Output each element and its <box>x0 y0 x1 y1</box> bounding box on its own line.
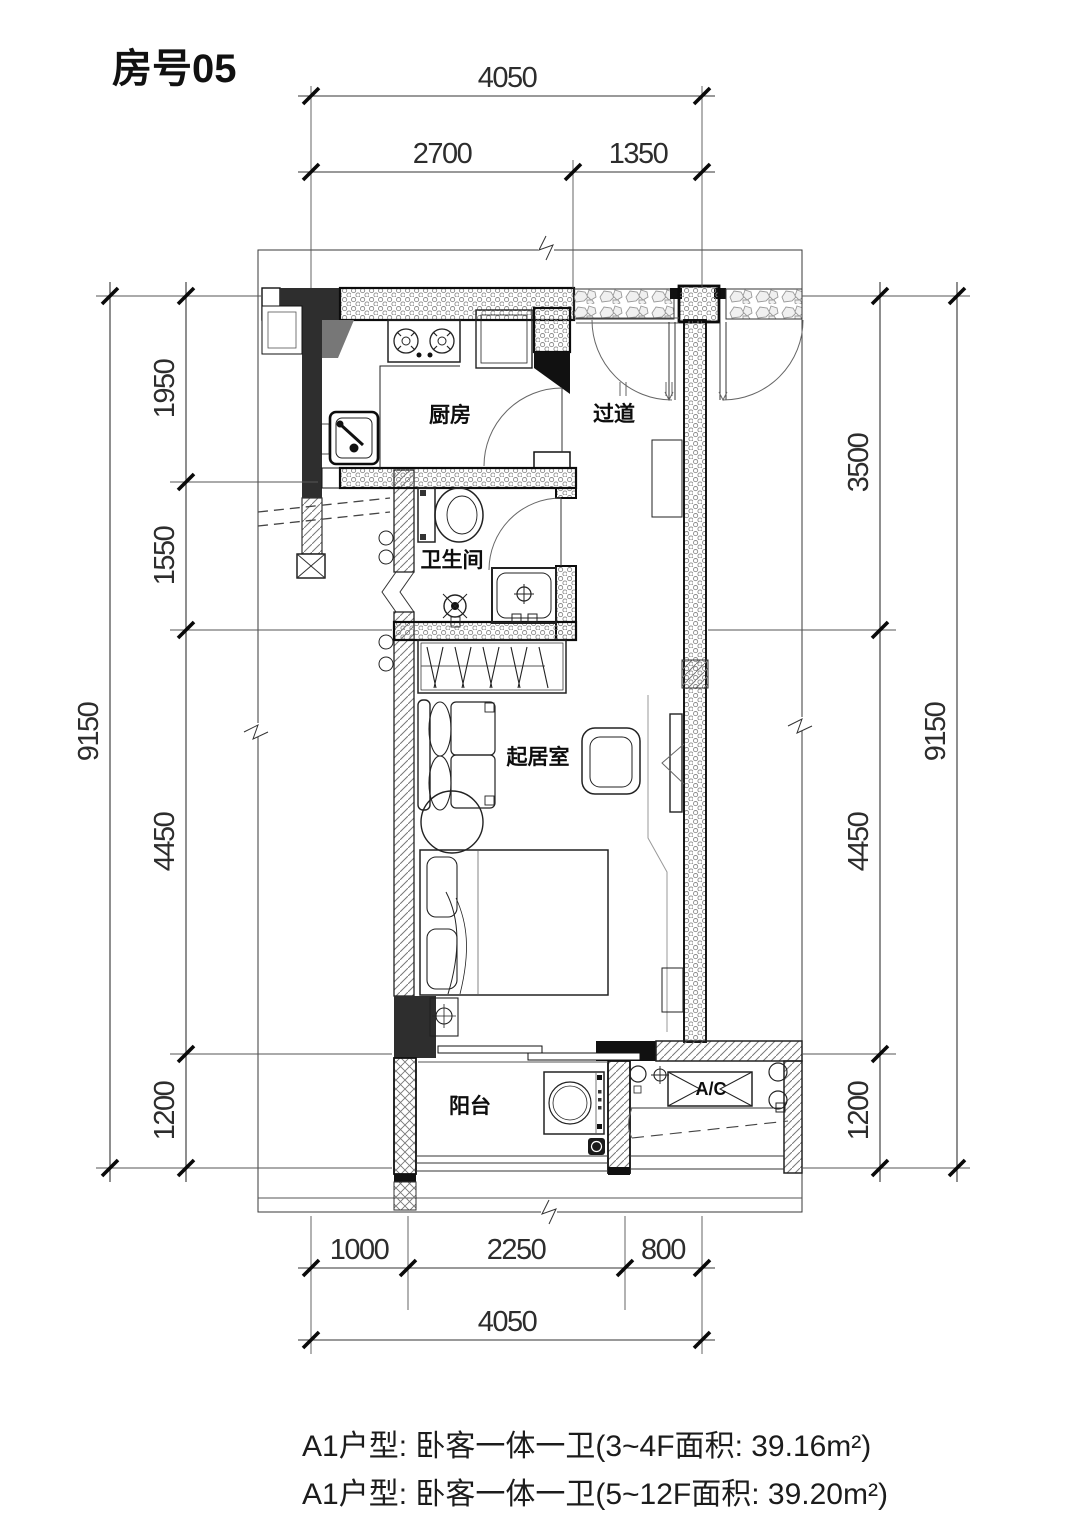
floor-edge-line <box>648 695 667 1032</box>
dim-left-seg1: 1950 <box>149 359 181 418</box>
washing-machine <box>544 1072 604 1134</box>
page-title: 房号05 <box>112 47 237 91</box>
caption-line-1: A1户型: 卧客一体一卫(3~4F面积: 39.16m²) <box>302 1430 871 1463</box>
floor-plan-canvas: 厨房 过道 卫生间 起居室 阳台 A/C 4050 2700 1350 1000… <box>0 0 1080 1528</box>
neighbor-entry-door <box>719 320 803 400</box>
wall-break-symbol <box>382 572 396 612</box>
balcony-label: 阳台 <box>449 1094 491 1118</box>
kitchen-label: 厨房 <box>429 403 471 427</box>
dim-left-seg3: 4450 <box>149 812 181 871</box>
dim-right-seg2: 4450 <box>843 812 875 871</box>
balcony-west-wall <box>394 1058 416 1174</box>
dim-top-overall: 4050 <box>478 62 537 94</box>
balcony-ac-divider-wall <box>608 1061 630 1173</box>
louver-swing <box>632 1121 788 1138</box>
pipe <box>379 657 393 671</box>
duct-shaft <box>302 288 322 498</box>
west-wall-lower <box>394 612 414 996</box>
pipe <box>379 635 393 649</box>
dim-top-seg1: 2700 <box>413 138 472 170</box>
ac-east-wall <box>784 1061 802 1173</box>
door-track-marks <box>620 382 672 396</box>
dim-top-seg2: 1350 <box>609 138 668 170</box>
coffee-table <box>421 791 483 853</box>
bathroom-label: 卫生间 <box>421 548 484 572</box>
ac-north-wall <box>656 1041 802 1061</box>
kitchen-door-jamb-box <box>534 452 570 468</box>
bathroom-south-wall <box>394 622 576 640</box>
sofa <box>418 700 495 810</box>
pipe-hole <box>630 1066 646 1082</box>
cabinet-panel <box>652 440 682 517</box>
tv <box>662 714 684 812</box>
bed <box>420 850 608 995</box>
floor-drain <box>588 1138 605 1155</box>
living-room-label: 起居室 <box>506 745 570 769</box>
caption-line-2: A1户型: 卧客一体一卫(5~12F面积: 39.20m²) <box>302 1478 888 1511</box>
dimensions-top: 4050 2700 1350 <box>298 62 715 288</box>
bathroom-door <box>489 498 561 570</box>
kitchen-fixtures <box>321 310 532 470</box>
entry-north-wall <box>574 289 674 319</box>
drain-box <box>634 1086 641 1093</box>
pipe <box>379 550 393 564</box>
balcony-window <box>416 1156 608 1171</box>
east-wall-pier <box>682 660 708 688</box>
washbasin <box>492 568 556 623</box>
flue-funnel-right <box>322 320 354 358</box>
floor-plan-page: 厨房 过道 卫生间 起居室 阳台 A/C 4050 2700 1350 1000… <box>0 0 1080 1528</box>
balcony-wall-stub <box>394 1182 416 1210</box>
wardrobe <box>418 640 566 693</box>
neighbor-north-wall <box>726 289 802 319</box>
bathroom-north-wall <box>340 468 576 488</box>
hallway-label: 过道 <box>593 402 635 426</box>
dim-right-overall: 9150 <box>920 702 952 761</box>
balcony-fixtures <box>416 1072 608 1171</box>
dim-bottom-seg2: 2250 <box>487 1234 546 1266</box>
armchair <box>582 728 640 794</box>
kitchen-sink <box>321 412 378 464</box>
dim-right-seg3: 1200 <box>843 1081 875 1140</box>
dim-bottom-seg3: 800 <box>641 1234 685 1266</box>
dim-left-overall: 9150 <box>73 702 105 761</box>
kitchen-east-wall <box>534 308 570 352</box>
dim-right-seg1: 3500 <box>843 433 875 492</box>
dim-left-seg2: 1550 <box>149 526 181 585</box>
toilet <box>418 488 483 542</box>
side-table <box>662 968 683 1012</box>
entry-pier <box>679 286 719 322</box>
drain-crosshair <box>651 1066 669 1084</box>
dimensions-bottom: 1000 2250 800 4050 <box>298 1216 715 1354</box>
ac-label: A/C <box>696 1079 727 1099</box>
bathroom-east-wall-top <box>556 488 576 498</box>
break-symbols <box>244 236 812 1224</box>
pipe <box>379 531 393 545</box>
dim-left-seg4: 1200 <box>149 1081 181 1140</box>
dim-bottom-seg1: 1000 <box>330 1234 389 1266</box>
entry-door <box>592 320 675 400</box>
dim-bottom-overall: 4050 <box>478 1306 537 1338</box>
doors <box>418 320 803 1062</box>
kitchen-door-jamb <box>534 352 570 394</box>
stove <box>388 320 460 362</box>
